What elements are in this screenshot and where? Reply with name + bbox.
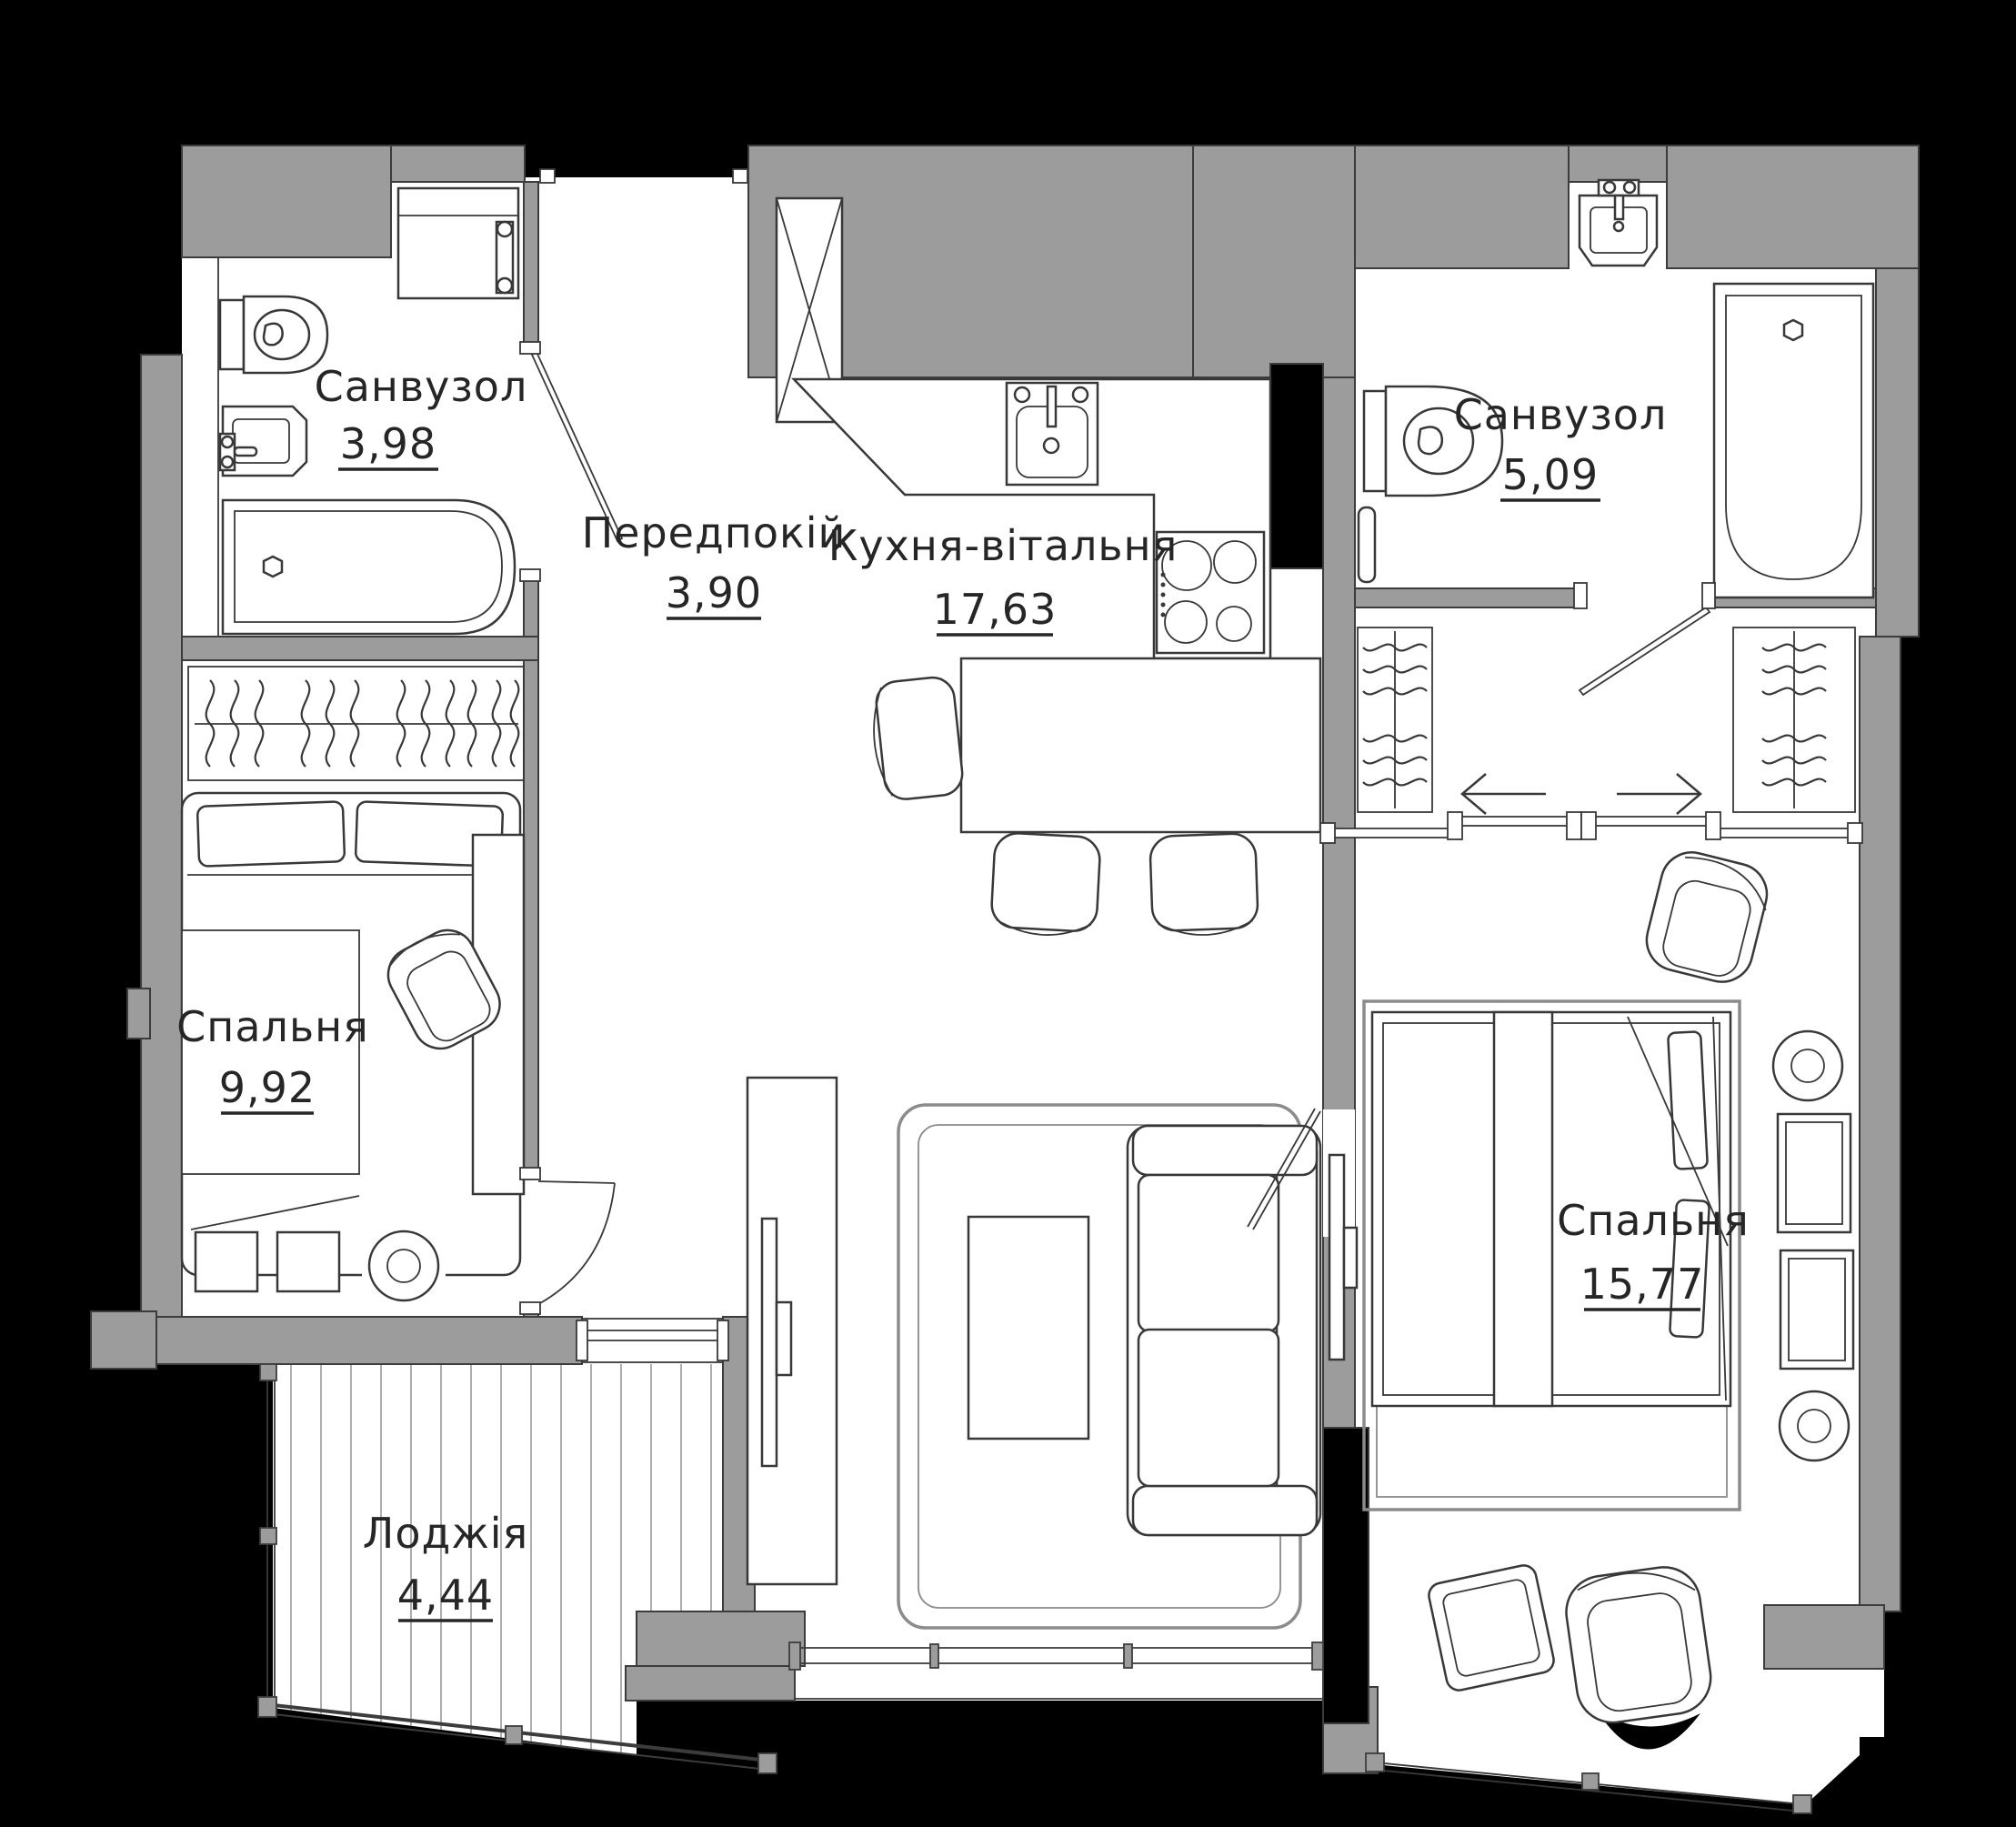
nightstand <box>1780 1250 1853 1369</box>
side-table <box>1427 1563 1556 1692</box>
kitchen-sink-icon <box>1007 383 1098 485</box>
area-loggia: 4,44 <box>397 1571 494 1620</box>
wall-bath1-bedroom1 <box>182 637 538 660</box>
balcony-door <box>577 1319 728 1362</box>
wall-bedroom1-loggia <box>141 1317 582 1364</box>
entrance-jamb <box>733 169 747 183</box>
area-bedroom-2: 15,77 <box>1580 1260 1705 1309</box>
area-hallway: 3,90 <box>666 568 762 617</box>
loggia-glazing-left <box>260 1364 276 1702</box>
wall-left-stub <box>127 989 150 1039</box>
floor-plan-canvas: Санвузол 3,98 Передпокій 3,90 Кухня-віта… <box>0 0 2016 1827</box>
dining-table <box>961 658 1320 832</box>
wall-right-exterior-upper <box>1876 268 1919 637</box>
wall-top-center-right <box>1193 146 1355 377</box>
area-bathroom-1: 3,98 <box>340 419 436 468</box>
sink-icon <box>220 407 306 476</box>
label-bathroom-1: Санвузол <box>315 362 528 411</box>
washing-machine-icon <box>398 188 518 298</box>
label-loggia: Лоджія <box>363 1509 528 1558</box>
wall-bay-pier-right <box>1764 1605 1884 1669</box>
wall-left-exterior <box>141 355 182 1317</box>
door-jamb <box>520 569 540 581</box>
wall-top-right-a <box>1355 146 1569 268</box>
wall-top-right-b <box>1667 146 1919 268</box>
sofa-icon <box>1128 1126 1320 1535</box>
wall-bath2-bottom-left <box>1355 588 1582 607</box>
pouf-icon <box>369 1231 438 1300</box>
wall-window-corner-a <box>637 1611 805 1666</box>
door-jamb <box>1574 583 1587 608</box>
area-bathroom-2: 5,09 <box>1502 450 1599 499</box>
pouf-icon <box>1780 1391 1849 1461</box>
area-bedroom-1: 9,92 <box>219 1063 316 1112</box>
bathtub-icon <box>1714 284 1873 597</box>
door-jamb <box>520 342 540 354</box>
label-bathroom-2: Санвузол <box>1454 390 1668 439</box>
floor-plan: Санвузол 3,98 Передпокій 3,90 Кухня-віта… <box>0 0 2016 1827</box>
bathtub-icon <box>223 500 515 634</box>
coffee-table <box>968 1217 1088 1439</box>
door-jamb <box>1702 583 1715 608</box>
area-kitchen-living: 17,63 <box>933 585 1058 634</box>
label-hallway: Передпокій <box>582 508 847 557</box>
label-bedroom-2: Спальня <box>1557 1196 1750 1245</box>
wall-top-right-niche-strip <box>1569 146 1667 182</box>
dining-chair-icon <box>1149 833 1259 937</box>
label-kitchen-living: Кухня-вітальня <box>828 521 1179 570</box>
towel-rail-icon <box>1359 507 1375 582</box>
pouf-icon <box>1773 1031 1842 1100</box>
wall-window-corner-b <box>626 1666 795 1701</box>
dining-chair-icon <box>990 832 1101 938</box>
wall-bath1-hall-upper <box>524 182 538 350</box>
bed-label-panel <box>182 930 359 1174</box>
wall-top-left-strip <box>391 146 525 182</box>
wall-top-left <box>182 146 391 257</box>
wall-loggia-left-corner <box>91 1311 156 1369</box>
structural-pier-black <box>1323 1428 1369 1723</box>
vent-shaft <box>1270 364 1323 568</box>
floor-bay <box>1364 1735 1860 1805</box>
wall-right-exterior-lower <box>1860 637 1901 1611</box>
wall-bedroom1-living-upper <box>524 660 538 1178</box>
nightstand <box>1778 1114 1851 1232</box>
toilet-icon <box>220 296 327 373</box>
entrance-jamb <box>540 169 555 183</box>
label-bedroom-1: Спальня <box>176 1002 369 1051</box>
